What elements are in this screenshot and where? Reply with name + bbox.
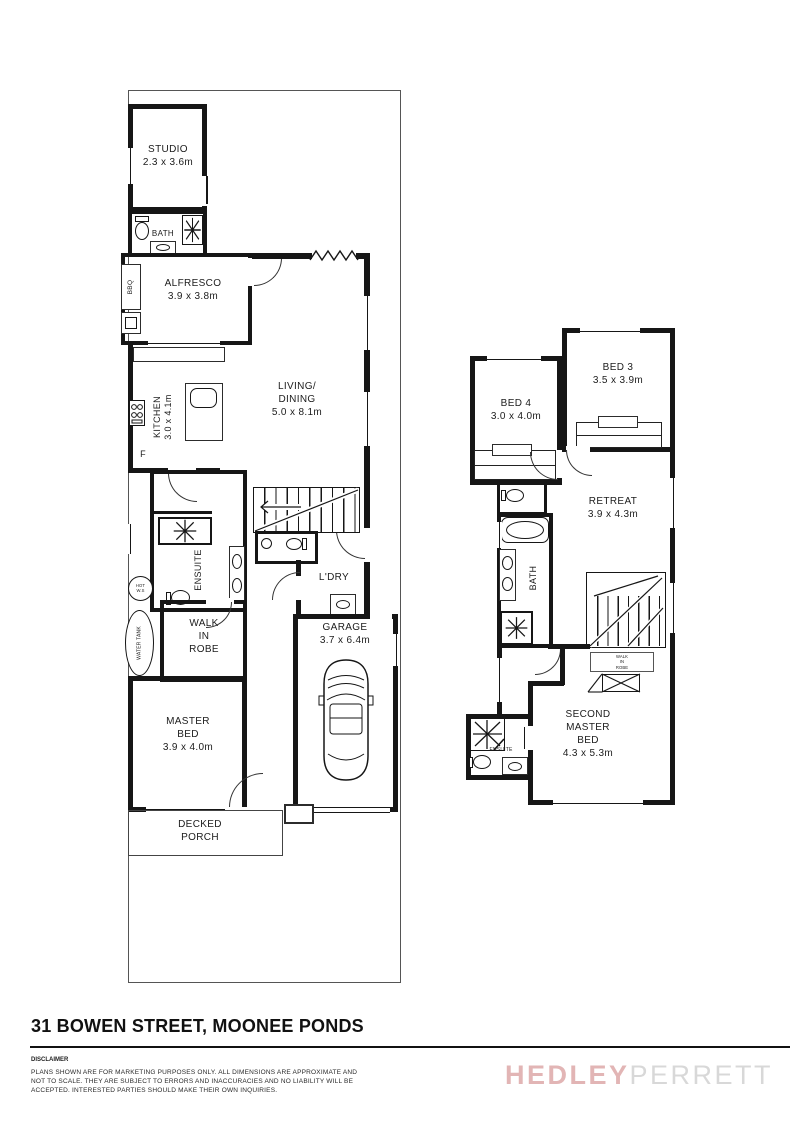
label-decked-porch: DECKED PORCH bbox=[150, 816, 250, 846]
garage-dims: 3.7 x 6.4m bbox=[320, 634, 370, 647]
sink-icon bbox=[336, 600, 350, 609]
label-fridge: F bbox=[136, 448, 150, 460]
stairs-ground-lines bbox=[253, 487, 360, 533]
label-bed3: BED 3 3.5 x 3.9m bbox=[578, 360, 658, 388]
toilet-icon bbox=[135, 222, 149, 240]
label-walk-in-robe-first: WALK IN ROBE bbox=[590, 653, 654, 671]
label-ensuite-first: ENSUITE bbox=[478, 746, 524, 754]
alfresco-dims: 3.9 x 3.8m bbox=[168, 290, 218, 303]
window bbox=[669, 583, 676, 633]
hot-water-line2: W.S bbox=[137, 588, 145, 593]
window bbox=[580, 327, 640, 334]
retreat-name: RETREAT bbox=[589, 495, 637, 508]
living-line2: DINING bbox=[278, 393, 315, 406]
door-arc bbox=[566, 450, 592, 476]
label-water-tank: WATER TANK bbox=[134, 613, 146, 674]
logo-perrett: PERRETT bbox=[630, 1060, 774, 1090]
door-gap bbox=[528, 726, 533, 750]
label-bbq: BBQ bbox=[125, 267, 137, 307]
wir-line3: ROBE bbox=[189, 643, 219, 656]
shower-icon bbox=[183, 216, 202, 244]
label-living-dining: LIVING/ DINING 5.0 x 8.1m bbox=[257, 376, 337, 422]
window bbox=[487, 355, 541, 362]
bath-name: BATH bbox=[152, 229, 174, 238]
disclaimer-line: ACCEPTED. INTERESTED PARTIES SHOULD MAKE… bbox=[31, 1087, 277, 1094]
toilet-icon bbox=[302, 538, 307, 550]
alfresco-name: ALFRESCO bbox=[165, 277, 222, 290]
robe-hatch-cross bbox=[602, 674, 640, 692]
wir-first-line3: ROBE bbox=[616, 665, 628, 670]
kitchen-bench bbox=[133, 347, 225, 362]
sink-icon bbox=[232, 578, 242, 593]
porch-line2: PORCH bbox=[181, 831, 219, 844]
window bbox=[148, 340, 220, 346]
toilet-icon bbox=[506, 489, 524, 502]
window bbox=[393, 634, 399, 666]
window bbox=[127, 524, 133, 554]
bathtub-icon bbox=[506, 521, 544, 539]
ensuite-ground-name: ENSUITE bbox=[193, 549, 204, 590]
basin-icon bbox=[261, 538, 272, 549]
door-leaf bbox=[524, 727, 525, 749]
studio-name: STUDIO bbox=[148, 143, 188, 156]
wardrobe-icon bbox=[492, 444, 532, 456]
wall bbox=[154, 511, 212, 514]
living-line1: LIVING/ bbox=[278, 380, 316, 393]
agency-logo: HEDLEYPERRETT bbox=[505, 1060, 773, 1091]
wall bbox=[560, 645, 565, 685]
retreat-dims: 3.9 x 4.3m bbox=[588, 508, 638, 521]
living-dims: 5.0 x 8.1m bbox=[272, 406, 322, 419]
label-master-bed: MASTER BED 3.9 x 4.0m bbox=[140, 710, 236, 758]
window bbox=[553, 799, 643, 806]
window bbox=[364, 296, 370, 350]
window bbox=[364, 392, 370, 446]
second-master-line3: BED bbox=[577, 734, 599, 747]
logo-hedley: HEDLEY bbox=[505, 1060, 630, 1090]
wardrobe-icon bbox=[598, 416, 638, 428]
page-title-address: 31 BOWEN STREET, MOONEE PONDS bbox=[31, 1016, 364, 1037]
window bbox=[669, 478, 676, 528]
disclaimer-line: NOT TO SCALE. THEY ARE SUBJECT TO ERRORS… bbox=[31, 1078, 353, 1085]
wall bbox=[528, 681, 564, 686]
wir-line1: WALK bbox=[189, 617, 218, 630]
label-studio: STUDIO 2.3 x 3.6m bbox=[130, 142, 206, 170]
door-leaf bbox=[206, 176, 208, 204]
bbq-icon bbox=[125, 317, 137, 329]
bed3-name: BED 3 bbox=[603, 361, 634, 374]
label-bath-first: BATH bbox=[508, 552, 558, 604]
shower-icon bbox=[504, 615, 529, 641]
sink-icon bbox=[232, 554, 242, 569]
label-bed4: BED 4 3.0 x 4.0m bbox=[476, 396, 556, 424]
label-retreat: RETREAT 3.9 x 4.3m bbox=[565, 492, 661, 524]
studio-dims: 2.3 x 3.6m bbox=[143, 156, 193, 169]
label-laundry: L'DRY bbox=[306, 570, 362, 584]
second-master-dims: 4.3 x 5.3m bbox=[563, 747, 613, 760]
label-garage: GARAGE 3.7 x 6.4m bbox=[303, 620, 387, 648]
disclaimer-heading: DISCLAIMER bbox=[31, 1057, 68, 1063]
garage-name: GARAGE bbox=[323, 621, 368, 634]
second-master-line2: MASTER bbox=[566, 721, 610, 734]
toilet-icon bbox=[286, 538, 302, 550]
bed4-dims: 3.0 x 4.0m bbox=[491, 410, 541, 423]
label-walk-in-robe-ground: WALK IN ROBE bbox=[162, 614, 246, 658]
master-line2: BED bbox=[177, 728, 199, 741]
label-hot-water: HOT W.S bbox=[128, 580, 153, 596]
label-second-master: SECOND MASTER BED 4.3 x 5.3m bbox=[538, 702, 638, 766]
divider-rule bbox=[30, 1046, 790, 1048]
label-kitchen: KITCHEN 3.0 x 4.1m bbox=[133, 385, 193, 449]
master-dims: 3.9 x 4.0m bbox=[163, 741, 213, 754]
wir-line2: IN bbox=[199, 630, 210, 643]
kitchen-dims: 3.0 x 4.1m bbox=[163, 394, 174, 440]
bed3-dims: 3.5 x 3.9m bbox=[593, 374, 643, 387]
sink-icon bbox=[190, 388, 217, 408]
kitchen-name: KITCHEN bbox=[152, 396, 163, 438]
second-master-line1: SECOND bbox=[566, 708, 611, 721]
laundry-name: L'DRY bbox=[319, 571, 349, 584]
bbq-name: BBQ bbox=[127, 280, 135, 295]
stairs-first-lines bbox=[586, 572, 666, 648]
toilet-icon bbox=[473, 755, 491, 769]
window bbox=[496, 658, 502, 702]
fridge-letter: F bbox=[140, 449, 146, 460]
porch-step bbox=[284, 804, 314, 824]
bath-first-name: BATH bbox=[528, 566, 539, 591]
sink-icon bbox=[508, 762, 522, 771]
disclaimer-line: PLANS SHOWN ARE FOR MARKETING PURPOSES O… bbox=[31, 1069, 357, 1076]
porch-line1: DECKED bbox=[178, 818, 222, 831]
door-arc bbox=[535, 649, 561, 675]
label-bath: BATH bbox=[148, 228, 178, 238]
master-line1: MASTER bbox=[166, 715, 210, 728]
water-tank-name: WATER TANK bbox=[137, 626, 143, 660]
label-alfresco: ALFRESCO 3.9 x 3.8m bbox=[147, 276, 239, 304]
wall bbox=[670, 328, 675, 805]
car-icon bbox=[318, 658, 374, 782]
door-gap bbox=[370, 614, 392, 619]
ensuite-first-name: ENSUITE bbox=[489, 747, 512, 753]
sink-icon bbox=[156, 244, 170, 251]
floorplan-page: STUDIO 2.3 x 3.6m BATH ALFRESCO 3.9 x 3.… bbox=[0, 0, 800, 1131]
window bbox=[496, 522, 502, 548]
bed4-name: BED 4 bbox=[501, 397, 532, 410]
break-line-zigzag bbox=[310, 248, 358, 264]
